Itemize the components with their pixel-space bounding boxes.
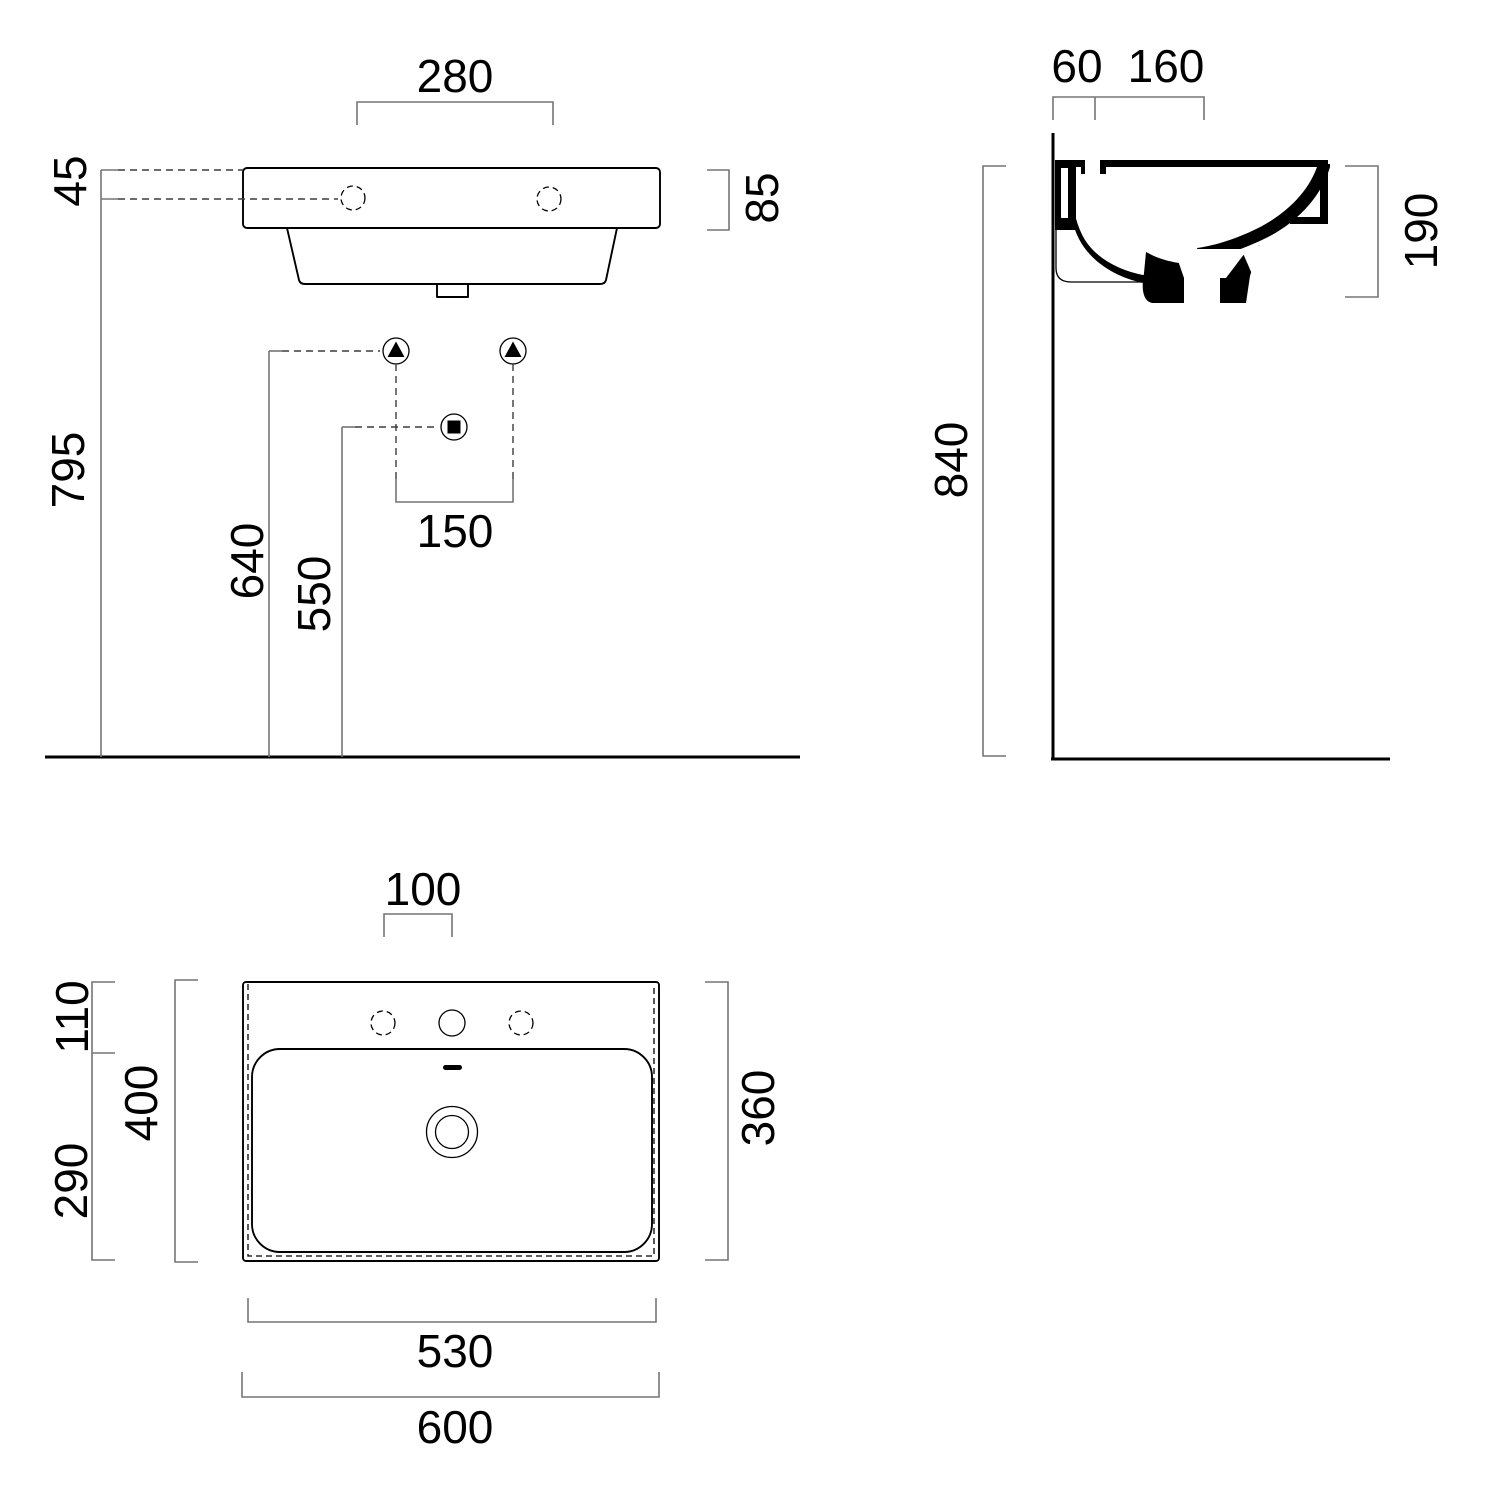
basin-bowl-underside: [287, 228, 617, 284]
plan-outer-outline: [243, 982, 659, 1261]
plan-taphole-center: [439, 1010, 465, 1036]
dim-label-190: 190: [1395, 193, 1447, 270]
drain-inner-ring: [436, 1116, 469, 1149]
dim-label-550: 550: [288, 556, 340, 633]
mounting-slot: [1061, 168, 1068, 218]
dim-label-160: 160: [1128, 40, 1205, 92]
dim-label-360: 360: [732, 1070, 784, 1147]
dim-bracket-360: [705, 982, 728, 1260]
drain-outer-ring: [427, 1107, 478, 1158]
overflow-slot: [443, 1065, 462, 1070]
plan-bottom-footprint-dashed: [248, 984, 654, 1256]
dim-label-290: 290: [45, 1143, 97, 1220]
dim-bracket-190: [1345, 166, 1378, 297]
dim-label-400: 400: [115, 1065, 167, 1142]
dim-label-100: 100: [385, 863, 462, 915]
water-supply-icon-left: [383, 338, 409, 364]
basin-front-outline: [243, 168, 660, 228]
dim-label-60: 60: [1051, 40, 1102, 92]
dim-label-795: 795: [42, 432, 94, 509]
front-elevation-view: 280 45 795 85 640: [42, 50, 800, 757]
dim-bracket-85: [707, 170, 729, 230]
waste-outlet-icon: [441, 414, 467, 440]
drain-channel: [1184, 278, 1220, 304]
dim-label-280: 280: [417, 50, 494, 102]
dim-label-45: 45: [44, 155, 96, 206]
dim-label-85: 85: [736, 172, 788, 223]
technical-drawing-canvas: 280 45 795 85 640: [0, 0, 1500, 1500]
dim-label-840: 840: [925, 422, 977, 499]
dim-bracket-400: [175, 980, 198, 1262]
drain-stub: [437, 284, 468, 297]
taphole-left-dashed: [341, 186, 365, 210]
plan-taphole-right-dashed: [509, 1011, 533, 1035]
plan-view: 100 110 290 400 360 530 600: [45, 863, 784, 1453]
dim-bracket-530: [248, 1298, 656, 1322]
dim-label-150: 150: [417, 505, 494, 557]
dim-label-640: 640: [221, 523, 273, 600]
plan-bowl-outline: [252, 1049, 652, 1252]
bowl-front-wall: [1197, 164, 1330, 261]
taphole-right-dashed: [537, 187, 561, 211]
dim-label-600: 600: [417, 1401, 494, 1453]
dim-label-530: 530: [417, 1325, 494, 1377]
dim-bracket-840: [983, 166, 1006, 756]
basin-section-profile: [1055, 160, 1330, 304]
plan-taphole-left-dashed: [371, 1011, 395, 1035]
dim-label-110: 110: [46, 980, 98, 1053]
dim-bracket-60-160: [1053, 97, 1204, 120]
deck-bar-right: [1100, 160, 1328, 174]
dim-bracket-150: [396, 479, 513, 502]
dim-bracket-100: [384, 914, 452, 937]
dim-bracket-280: [357, 102, 553, 125]
section-view: 60 160 840 190: [925, 40, 1447, 760]
water-supply-icon-right: [500, 338, 526, 364]
